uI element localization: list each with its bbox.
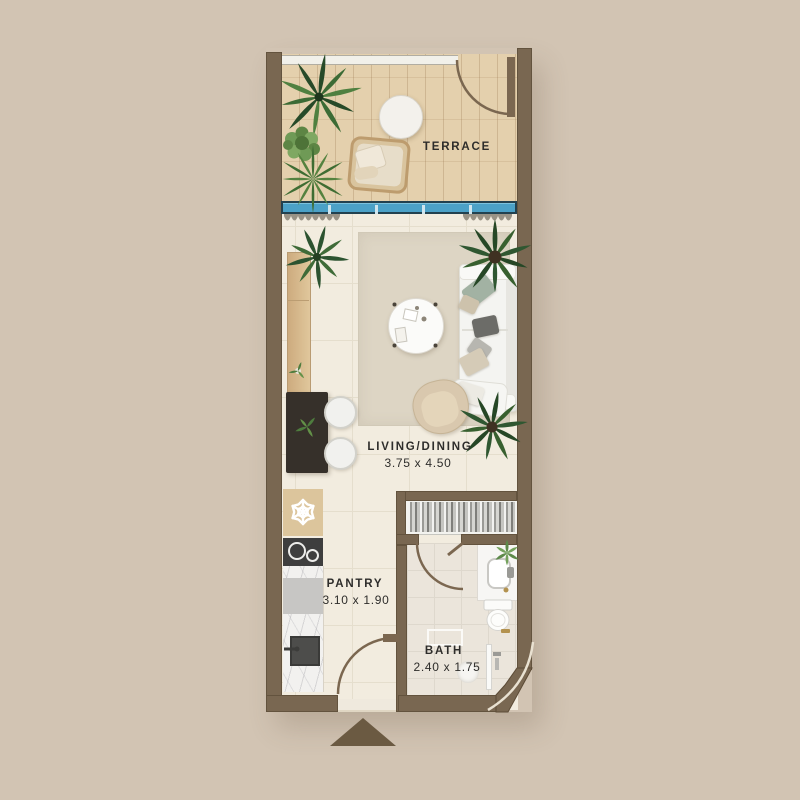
- window-mullion: [469, 205, 472, 214]
- entry-threshold: [338, 699, 396, 712]
- bath-label: BATH: [394, 645, 494, 657]
- pantry-dimensions: 3.10 x 1.90: [296, 593, 416, 607]
- terrace-round-table: [379, 95, 423, 139]
- wall-bottom-bath: [398, 695, 500, 712]
- sofa-backrest: [506, 266, 515, 408]
- kitchen-sink: [290, 636, 320, 666]
- bath-faucet: [507, 567, 514, 578]
- wall-left: [266, 52, 282, 712]
- wardrobe: [406, 500, 517, 534]
- living-dining-dimensions: 3.75 x 4.50: [358, 456, 478, 470]
- pantry-label: PANTRY: [305, 578, 405, 590]
- coffee-table: [388, 298, 444, 354]
- entry-arrow: [330, 718, 396, 746]
- window-mullion: [422, 205, 425, 214]
- console-shelf-line: [287, 300, 309, 301]
- wall-right: [517, 48, 532, 670]
- wall-bath-top-right: [461, 534, 517, 545]
- window-mullion: [328, 205, 331, 214]
- shower-niche: [427, 629, 463, 646]
- console-table: [287, 252, 311, 394]
- wall-wardrobe-top: [402, 491, 517, 501]
- cooktop: [283, 538, 323, 566]
- terrace-railing: [282, 55, 458, 65]
- floor-plan-page: { "plan": { "rooms": { "terrace": { "lab…: [0, 0, 800, 800]
- terrace-label: TERRACE: [407, 141, 507, 153]
- dining-chair: [324, 396, 357, 429]
- window-mullion: [375, 205, 378, 214]
- wall-bath-left: [396, 545, 407, 712]
- fridge: [283, 489, 323, 538]
- wall-bottom-left: [266, 695, 338, 712]
- dining-table: [286, 392, 328, 473]
- living-dining-label: LIVING/DINING: [350, 441, 490, 453]
- wicker-lounge-chair: [347, 135, 411, 194]
- window-band: [281, 201, 517, 214]
- wall-bath-top-left: [396, 534, 419, 545]
- bath-dimensions: 2.40 x 1.75: [387, 660, 507, 674]
